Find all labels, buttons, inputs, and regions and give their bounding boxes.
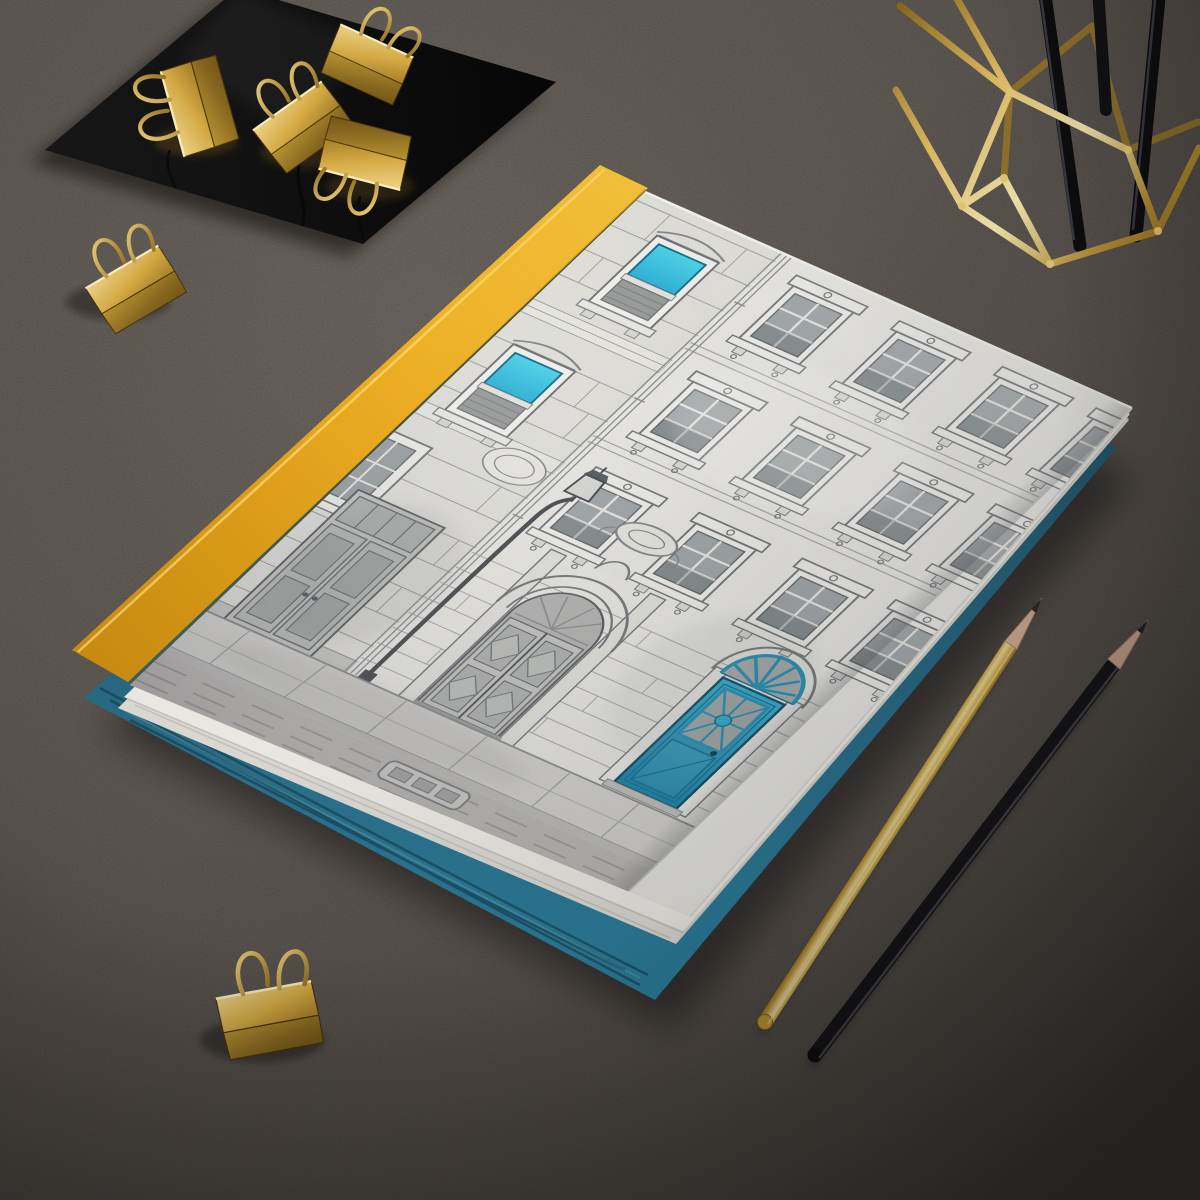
scene [0,0,1200,1200]
product-photo [0,0,1200,1200]
